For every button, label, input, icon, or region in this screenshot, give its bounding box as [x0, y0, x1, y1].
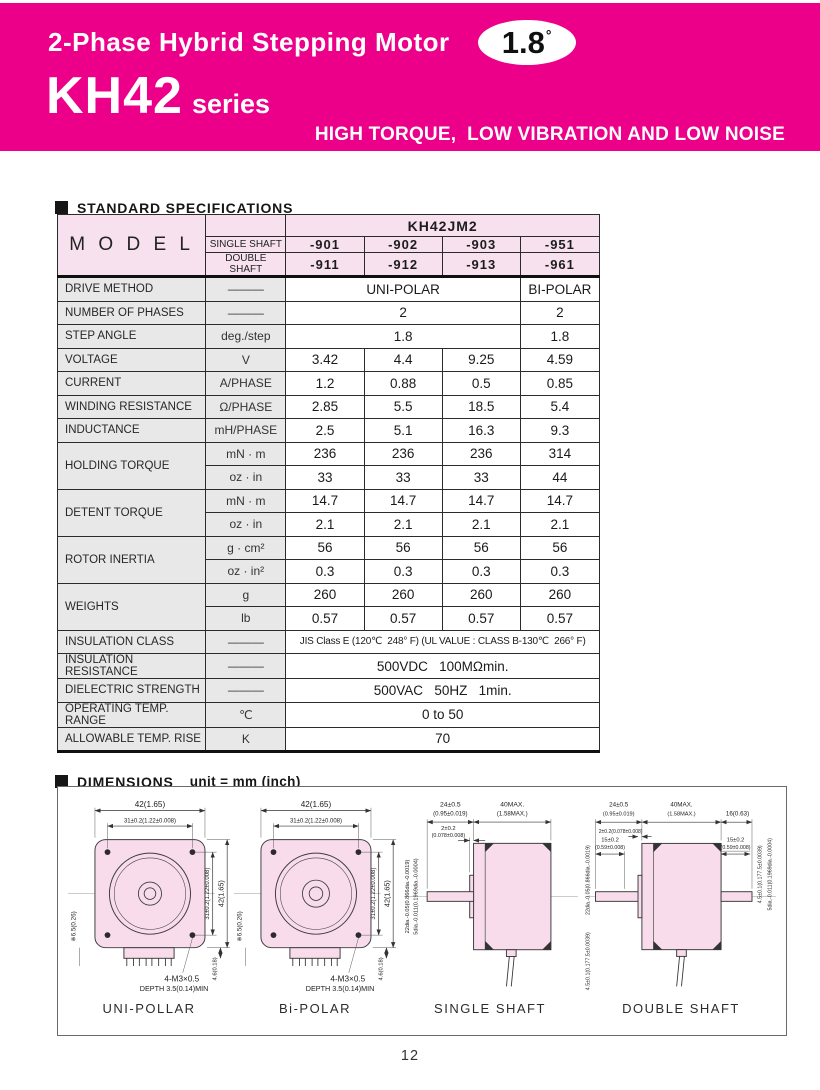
model-number: -902 — [364, 237, 442, 253]
spec-value-cell: 2.85 — [286, 395, 364, 419]
dim-label-height: 42(1.65) — [216, 880, 225, 907]
spec-row-label: VOLTAGE — [58, 348, 206, 372]
spec-value-cell: 500VAC 50HZ 1min. — [286, 679, 600, 703]
dim-label-shaft-ext: 15±0.2 — [601, 837, 619, 843]
spec-row-unit: ——— — [206, 654, 286, 679]
spec-value-cell: 4.4 — [364, 348, 442, 372]
spec-table-body: DRIVE METHOD———UNI-POLARBI-POLARNUMBER O… — [58, 277, 600, 752]
spec-value-cell: 56 — [442, 536, 520, 560]
model-number: -912 — [364, 253, 442, 277]
spec-table-row: VOLTAGEV3.424.49.254.59 — [58, 348, 600, 372]
spec-value-cell: 0.3 — [520, 560, 599, 584]
dim-label-side-ref: ※6.5(0.26) — [237, 911, 244, 941]
spec-table-row: CURRENTA/PHASE1.20.880.50.85 — [58, 372, 600, 396]
dim-label-shaft-len-in: (0.95±0.019) — [433, 810, 467, 817]
spec-value-cell: 16.3 — [442, 419, 520, 443]
series-name: KH42 — [46, 67, 183, 125]
spec-value-cell: 0.57 — [442, 607, 520, 631]
page-footer: 12 — [0, 1048, 820, 1064]
spec-table-row: STEP ANGLEdeg./step1.81.8 — [58, 325, 600, 349]
figure-single-shaft: 24±0.5 (0.95±0.019) 40MAX. (1.58MAX.) 2±… — [398, 795, 582, 1016]
spec-value-cell: 0.57 — [286, 607, 364, 631]
spec-value-cell: 260 — [286, 583, 364, 607]
dim-label-pilot-dia: 22dia.-0.05(0.866dia.-0.0019) — [405, 860, 411, 934]
family-header-cell: KH42JM2 — [286, 215, 600, 237]
spec-row-unit: ——— — [206, 277, 286, 302]
spec-value-cell: 5.4 — [520, 395, 599, 419]
tap-note-line2: DEPTH 3.5(0.14)MIN — [306, 984, 375, 993]
spec-value-cell: UNI-POLAR — [286, 277, 520, 302]
dim-label-hole-pitch: 31±0.2(1.22±0.008) — [124, 819, 176, 825]
dim-label-connector: 4.6(0.18) — [379, 957, 385, 980]
tap-note-line1: 4-M3×0.5 — [330, 974, 365, 983]
spec-value-cell: 14.7 — [286, 489, 364, 513]
spec-value-cell: 0.85 — [520, 372, 599, 396]
dim-label-hole-pitch: 31±0.2(1.22±0.008) — [290, 819, 342, 825]
dim-label-rear-boss: 4.5±0.1(0.177.5±0.0039) — [586, 932, 592, 990]
side-view-geometry — [404, 843, 578, 986]
spec-value-cell: 33 — [286, 466, 364, 490]
spec-row-unit: mH/PHASE — [206, 419, 286, 443]
figure-bi-polar: 42(1.65) 31±0.2(1.22±0.008) 31±0.2(1.22±… — [232, 795, 398, 1016]
spec-value-cell: 2.5 — [286, 419, 364, 443]
spec-value-cell: 1.8 — [520, 325, 599, 349]
dim-label-boss-in: (0.078±0.008) — [432, 833, 466, 839]
dim-label-hole-pitch-v: 31±0.2(1.22±0.008) — [371, 868, 377, 920]
dim-label-pilot-dia: 22dia.-0.05(0.866dia.-0.0019) — [586, 845, 592, 915]
dim-label-connector: 4.6(0.18) — [213, 957, 219, 980]
tagline: HIGH TORQUE, LOW VIBRATION AND LOW NOISE — [315, 124, 785, 146]
series-title: KH42series — [46, 66, 270, 126]
spec-row-label: OPERATING TEMP. RANGE — [58, 702, 206, 727]
spec-row-label: DETENT TORQUE — [58, 489, 206, 536]
spec-row-unit: g — [206, 583, 286, 607]
spec-table-row: WEIGHTSg260260260260 — [58, 583, 600, 607]
header-banner: 2-Phase Hybrid Stepping Motor 1.8° KH42s… — [0, 3, 820, 151]
model-number: -903 — [442, 237, 520, 253]
dim-label-body-len: 40MAX. — [500, 802, 524, 809]
spec-value-cell: 4.59 — [520, 348, 599, 372]
dim-label-shaft-len: 24±0.5 — [609, 802, 629, 809]
spec-row-unit: ——— — [206, 301, 286, 325]
spec-value-cell: 0.88 — [364, 372, 442, 396]
spec-value-cell: 1.8 — [286, 325, 520, 349]
spec-row-label: HOLDING TORQUE — [58, 442, 206, 489]
step-angle-badge: 1.8° — [478, 20, 576, 65]
header-title-row: 2-Phase Hybrid Stepping Motor 1.8° — [48, 20, 576, 65]
model-number: -913 — [442, 253, 520, 277]
dim-label-width: 42(1.65) — [135, 800, 166, 809]
spec-table-row: DETENT TORQUEmN · m14.714.714.714.7 — [58, 489, 600, 513]
model-number: -901 — [286, 237, 364, 253]
spec-value-cell: 2 — [286, 301, 520, 325]
spec-table-row: ROTOR INERTIAg · cm²56565656 — [58, 536, 600, 560]
caption-double-shaft: DOUBLE SHAFT — [622, 1001, 740, 1016]
spec-row-unit: oz · in — [206, 513, 286, 537]
spec-value-cell: 33 — [364, 466, 442, 490]
dim-label-body-len: 40MAX. — [670, 802, 693, 809]
spec-table-row: WINDING RESISTANCEΩ/PHASE2.855.518.55.4 — [58, 395, 600, 419]
spec-value-cell: 14.7 — [442, 489, 520, 513]
spec-value-cell: 56 — [520, 536, 599, 560]
spec-value-cell: 56 — [364, 536, 442, 560]
spec-row-unit: A/PHASE — [206, 372, 286, 396]
spec-row-label: INSULATION RESISTANCE — [58, 654, 206, 679]
dim-label-shaft-dia: 5dia.-0.011(0.1969dia.-0.0004) — [413, 858, 419, 935]
spec-value-cell: 9.3 — [520, 419, 599, 443]
spec-row-label: ROTOR INERTIA — [58, 536, 206, 583]
spec-row-label: ALLOWABLE TEMP. RISE — [58, 727, 206, 752]
caption-bi-polar: Bi-POLAR — [279, 1001, 351, 1016]
spec-value-cell: 0.3 — [364, 560, 442, 584]
dim-label-body-len-in: (1.58MAX.) — [667, 811, 695, 817]
spec-row-unit: K — [206, 727, 286, 752]
dim-label-shaft-ext-in: (0.59±0.008) — [721, 845, 751, 851]
spec-value-cell: 500VDC 100MΩmin. — [286, 654, 600, 679]
spec-value-cell: 0.3 — [442, 560, 520, 584]
spec-value-cell: 18.5 — [442, 395, 520, 419]
spec-table: M O D E L KH42JM2 SINGLE SHAFT -901 -902… — [57, 214, 600, 753]
dimensions-panel: 42(1.65) 31±0.2(1.22±0.008) 31±0.2(1.22±… — [57, 786, 787, 1036]
spec-value-cell: 9.25 — [442, 348, 520, 372]
degree-symbol: ° — [546, 28, 552, 42]
double-shaft-header: DOUBLE SHAFT — [206, 253, 286, 277]
spec-table-head: M O D E L KH42JM2 SINGLE SHAFT -901 -902… — [58, 215, 600, 277]
bi-polar-drawing: 42(1.65) 31±0.2(1.22±0.008) 31±0.2(1.22±… — [232, 795, 398, 1000]
step-angle-value: 1.8 — [502, 27, 545, 58]
spec-row-label: STEP ANGLE — [58, 325, 206, 349]
caption-single-shaft: SINGLE SHAFT — [434, 1001, 546, 1016]
figure-double-shaft: 24±0.5 (0.95±0.019) 40MAX. (1.58MAX.) 16… — [582, 795, 780, 1016]
spec-row-unit: Ω/PHASE — [206, 395, 286, 419]
spec-row-label: DRIVE METHOD — [58, 277, 206, 302]
spec-row-unit: g · cm² — [206, 536, 286, 560]
section-square-icon — [55, 201, 68, 214]
dim-label-body-len-in: (1.58MAX.) — [497, 810, 528, 817]
spec-value-cell: 0 to 50 — [286, 702, 600, 727]
dim-label-hole-pitch-v: 31±0.2(1.22±0.008) — [205, 868, 211, 920]
spec-value-cell: 236 — [286, 442, 364, 466]
dim-label-shaft-len: 24±0.5 — [440, 802, 461, 809]
spec-row-unit: V — [206, 348, 286, 372]
spec-value-cell: 14.7 — [364, 489, 442, 513]
spec-value-cell: 0.57 — [520, 607, 599, 631]
spec-value-cell: 3.42 — [286, 348, 364, 372]
spec-value-cell: 14.7 — [520, 489, 599, 513]
spec-table-row: NUMBER OF PHASES———22 — [58, 301, 600, 325]
spec-value-cell: 5.1 — [364, 419, 442, 443]
series-suffix: series — [192, 89, 270, 119]
spec-value-cell: 2.1 — [442, 513, 520, 537]
spec-table-row: DRIVE METHOD———UNI-POLARBI-POLAR — [58, 277, 600, 302]
product-title: 2-Phase Hybrid Stepping Motor — [48, 27, 450, 58]
uni-polar-drawing: 42(1.65) 31±0.2(1.22±0.008) 31±0.2(1.22±… — [66, 795, 232, 1000]
spec-value-cell: 2.1 — [364, 513, 442, 537]
spec-value-cell: 2 — [520, 301, 599, 325]
spec-value-cell: 0.3 — [286, 560, 364, 584]
spec-table-row: DIELECTRIC STRENGTH———500VAC 50HZ 1min. — [58, 679, 600, 703]
model-number: -911 — [286, 253, 364, 277]
dim-label-rear-boss: 4.5±0.1(0.177.5±0.0039) — [758, 845, 764, 903]
spec-row-label: INSULATION CLASS — [58, 630, 206, 654]
dim-label-boss-full: 2±0.2(0.078±0.008) — [599, 829, 643, 835]
spec-value-cell: 5.5 — [364, 395, 442, 419]
single-shaft-drawing: 24±0.5 (0.95±0.019) 40MAX. (1.58MAX.) 2±… — [398, 795, 582, 1000]
tap-note-line2: DEPTH 3.5(0.14)MIN — [140, 984, 209, 993]
spec-value-cell: 1.2 — [286, 372, 364, 396]
model-header-cell: M O D E L — [58, 215, 206, 277]
spec-value-cell: 236 — [442, 442, 520, 466]
spec-row-unit: ——— — [206, 630, 286, 654]
spec-value-cell: 2.1 — [286, 513, 364, 537]
front-view-geometry — [234, 840, 381, 966]
spec-table-row: HOLDING TORQUEmN · m236236236314 — [58, 442, 600, 466]
spec-row-label: DIELECTRIC STRENGTH — [58, 679, 206, 703]
spec-row-unit: ——— — [206, 679, 286, 703]
dim-label-shaft-ext: 15±0.2 — [727, 837, 745, 843]
spec-value-cell: BI-POLAR — [520, 277, 599, 302]
spec-value-cell: 260 — [520, 583, 599, 607]
caption-uni-polar: UNI-POLLAR — [102, 1001, 195, 1016]
front-view-geometry — [68, 840, 215, 966]
spec-row-label: WINDING RESISTANCE — [58, 395, 206, 419]
spec-row-unit: lb — [206, 607, 286, 631]
dim-label-shaft-dia: 5dia.-0.011(0.1969dia.-0.0004) — [767, 838, 773, 911]
dim-label-shaft-len-in: (0.95±0.019) — [603, 811, 635, 817]
model-number: -961 — [520, 253, 599, 277]
spec-row-unit: deg./step — [206, 325, 286, 349]
spec-value-cell: 2.1 — [520, 513, 599, 537]
spec-value-cell: 236 — [364, 442, 442, 466]
double-shaft-drawing: 24±0.5 (0.95±0.019) 40MAX. (1.58MAX.) 16… — [582, 795, 780, 1000]
spec-table-row: OPERATING TEMP. RANGE℃0 to 50 — [58, 702, 600, 727]
spec-value-cell: 44 — [520, 466, 599, 490]
spec-row-unit: ℃ — [206, 702, 286, 727]
spec-table-row: INDUCTANCEmH/PHASE2.55.116.39.3 — [58, 419, 600, 443]
spec-row-unit: mN · m — [206, 489, 286, 513]
dim-label-width: 42(1.65) — [301, 800, 332, 809]
spec-row-label: NUMBER OF PHASES — [58, 301, 206, 325]
side-view-geometry — [586, 843, 776, 986]
spec-row-unit: oz · in² — [206, 560, 286, 584]
tap-note-line1: 4-M3×0.5 — [164, 974, 199, 983]
spec-table-row: INSULATION RESISTANCE———500VDC 100MΩmin. — [58, 654, 600, 679]
spec-value-cell: 260 — [364, 583, 442, 607]
model-header-spacer — [206, 215, 286, 237]
spec-row-label: INDUCTANCE — [58, 419, 206, 443]
dim-label-height: 42(1.65) — [382, 880, 391, 907]
figure-uni-polar: 42(1.65) 31±0.2(1.22±0.008) 31±0.2(1.22±… — [66, 795, 232, 1016]
dim-label-boss: 2±0.2 — [441, 826, 455, 832]
spec-value-cell: 314 — [520, 442, 599, 466]
spec-value-cell: 56 — [286, 536, 364, 560]
spec-row-unit: oz · in — [206, 466, 286, 490]
spec-table-row: ALLOWABLE TEMP. RISEK70 — [58, 727, 600, 752]
spec-row-label: WEIGHTS — [58, 583, 206, 630]
spec-value-cell: 33 — [442, 466, 520, 490]
model-number: -951 — [520, 237, 599, 253]
single-shaft-header: SINGLE SHAFT — [206, 237, 286, 253]
spec-value-cell: JIS Class E (120℃ 248° F) (UL VALUE : CL… — [286, 630, 600, 654]
spec-row-label: CURRENT — [58, 372, 206, 396]
spec-table-row: INSULATION CLASS———JIS Class E (120℃ 248… — [58, 630, 600, 654]
dim-label-side-ref: ※6.5(0.26) — [71, 911, 78, 941]
spec-value-cell: 0.5 — [442, 372, 520, 396]
spec-value-cell: 260 — [442, 583, 520, 607]
spec-value-cell: 70 — [286, 727, 600, 752]
spec-value-cell: 0.57 — [364, 607, 442, 631]
dim-label-rear-shaft: 16(0.63) — [726, 810, 749, 817]
page-number: 12 — [401, 1048, 419, 1064]
dim-label-shaft-ext-in: (0.59±0.008) — [595, 845, 625, 851]
spec-row-unit: mN · m — [206, 442, 286, 466]
